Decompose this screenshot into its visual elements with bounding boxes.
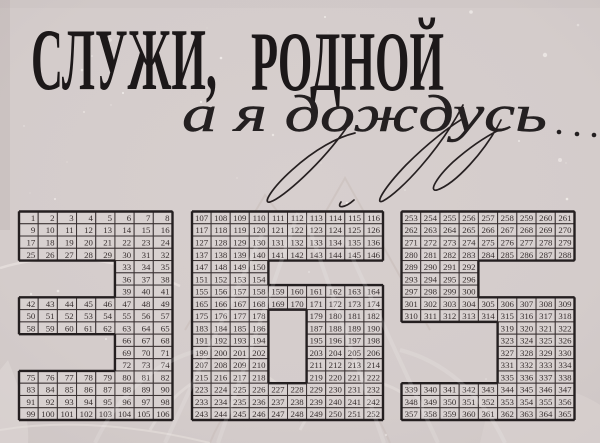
- svg-text:257: 257: [481, 213, 495, 223]
- svg-text:150: 150: [252, 262, 266, 272]
- svg-text:303: 303: [443, 299, 457, 309]
- svg-text:360: 360: [462, 409, 476, 419]
- svg-text:241: 241: [348, 397, 361, 407]
- svg-text:110: 110: [253, 213, 266, 223]
- svg-text:135: 135: [348, 238, 362, 248]
- svg-text:335: 335: [501, 372, 515, 382]
- svg-text:28: 28: [84, 250, 93, 260]
- svg-text:65: 65: [161, 323, 170, 333]
- svg-text:319: 319: [501, 323, 515, 333]
- svg-text:341: 341: [443, 385, 456, 395]
- svg-text:314: 314: [481, 311, 495, 321]
- svg-text:16: 16: [161, 225, 170, 235]
- svg-text:126: 126: [367, 225, 381, 235]
- svg-text:323: 323: [501, 336, 515, 346]
- svg-text:363: 363: [520, 409, 534, 419]
- svg-text:320: 320: [520, 323, 534, 333]
- svg-text:128: 128: [214, 238, 228, 248]
- svg-text:44: 44: [65, 299, 74, 309]
- svg-text:95: 95: [103, 397, 112, 407]
- svg-text:3: 3: [69, 213, 74, 223]
- svg-text:254: 254: [424, 213, 438, 223]
- svg-text:210: 210: [252, 360, 266, 370]
- svg-text:144: 144: [329, 250, 343, 260]
- svg-text:139: 139: [233, 250, 247, 260]
- svg-text:160: 160: [290, 287, 304, 297]
- svg-text:330: 330: [558, 348, 572, 358]
- svg-text:146: 146: [367, 250, 381, 260]
- svg-text:222: 222: [367, 372, 380, 382]
- svg-text:57: 57: [161, 311, 170, 321]
- svg-text:165: 165: [195, 299, 209, 309]
- svg-text:329: 329: [539, 348, 553, 358]
- svg-text:237: 237: [271, 397, 285, 407]
- svg-text:223: 223: [195, 385, 209, 395]
- svg-text:287: 287: [539, 250, 553, 260]
- svg-text:185: 185: [233, 323, 247, 333]
- svg-text:7: 7: [146, 213, 151, 223]
- svg-text:69: 69: [122, 348, 131, 358]
- svg-text:275: 275: [481, 238, 495, 248]
- svg-text:181: 181: [348, 311, 361, 321]
- svg-text:247: 247: [271, 409, 285, 419]
- svg-text:60: 60: [65, 323, 74, 333]
- svg-text:216: 216: [214, 372, 228, 382]
- svg-text:328: 328: [520, 348, 534, 358]
- svg-text:29: 29: [103, 250, 112, 260]
- svg-text:167: 167: [233, 299, 247, 309]
- svg-text:23: 23: [142, 238, 151, 248]
- svg-text:258: 258: [501, 213, 515, 223]
- svg-text:5: 5: [108, 213, 113, 223]
- svg-text:212: 212: [329, 360, 342, 370]
- svg-text:250: 250: [329, 409, 343, 419]
- svg-text:280: 280: [405, 250, 419, 260]
- svg-text:151: 151: [195, 274, 208, 284]
- svg-text:345: 345: [520, 385, 534, 395]
- svg-text:152: 152: [214, 274, 227, 284]
- svg-text:243: 243: [195, 409, 209, 419]
- svg-text:40: 40: [142, 287, 151, 297]
- svg-text:279: 279: [558, 238, 572, 248]
- svg-text:193: 193: [233, 336, 247, 346]
- svg-text:53: 53: [84, 311, 93, 321]
- svg-text:202: 202: [252, 348, 265, 358]
- svg-text:188: 188: [329, 323, 343, 333]
- svg-text:148: 148: [214, 262, 228, 272]
- svg-text:98: 98: [161, 397, 170, 407]
- svg-text:249: 249: [310, 409, 324, 419]
- svg-text:92: 92: [46, 397, 55, 407]
- svg-text:163: 163: [348, 287, 362, 297]
- svg-text:248: 248: [290, 409, 304, 419]
- svg-text:256: 256: [462, 213, 476, 223]
- svg-text:267: 267: [501, 225, 515, 235]
- svg-text:245: 245: [233, 409, 247, 419]
- svg-text:113: 113: [310, 213, 323, 223]
- svg-text:311: 311: [424, 311, 437, 321]
- svg-text:288: 288: [558, 250, 572, 260]
- svg-text:106: 106: [156, 409, 170, 419]
- svg-text:240: 240: [329, 397, 343, 407]
- svg-text:31: 31: [142, 250, 151, 260]
- svg-text:230: 230: [329, 385, 343, 395]
- svg-text:17: 17: [27, 238, 36, 248]
- svg-text:39: 39: [122, 287, 131, 297]
- svg-text:142: 142: [290, 250, 303, 260]
- svg-text:22: 22: [122, 238, 131, 248]
- svg-text:136: 136: [367, 238, 381, 248]
- svg-text:198: 198: [367, 336, 381, 346]
- svg-text:284: 284: [481, 250, 495, 260]
- svg-text:265: 265: [462, 225, 476, 235]
- svg-text:353: 353: [501, 397, 515, 407]
- svg-text:325: 325: [539, 336, 553, 346]
- svg-text:307: 307: [520, 299, 534, 309]
- svg-text:266: 266: [481, 225, 495, 235]
- svg-text:203: 203: [310, 348, 324, 358]
- svg-text:229: 229: [310, 385, 324, 395]
- svg-text:10: 10: [46, 225, 55, 235]
- svg-text:84: 84: [46, 385, 55, 395]
- svg-text:340: 340: [424, 385, 438, 395]
- svg-text:32: 32: [161, 250, 170, 260]
- svg-text:71: 71: [161, 348, 170, 358]
- svg-text:56: 56: [142, 311, 151, 321]
- svg-text:80: 80: [122, 372, 131, 382]
- svg-text:30: 30: [122, 250, 131, 260]
- svg-text:357: 357: [405, 409, 419, 419]
- svg-text:318: 318: [558, 311, 572, 321]
- svg-text:27: 27: [65, 250, 74, 260]
- svg-text:54: 54: [103, 311, 112, 321]
- svg-text:286: 286: [520, 250, 534, 260]
- svg-text:331: 331: [501, 360, 514, 370]
- svg-text:285: 285: [501, 250, 515, 260]
- svg-text:121: 121: [271, 225, 284, 235]
- svg-text:15: 15: [142, 225, 151, 235]
- svg-text:238: 238: [290, 397, 304, 407]
- svg-text:359: 359: [443, 409, 457, 419]
- svg-text:34: 34: [142, 262, 151, 272]
- svg-text:324: 324: [520, 336, 534, 346]
- svg-text:99: 99: [27, 409, 36, 419]
- svg-text:8: 8: [165, 213, 170, 223]
- svg-text:89: 89: [142, 385, 151, 395]
- svg-text:316: 316: [520, 311, 534, 321]
- svg-text:90: 90: [161, 385, 170, 395]
- svg-text:292: 292: [462, 262, 475, 272]
- svg-text:236: 236: [252, 397, 266, 407]
- svg-text:91: 91: [27, 397, 36, 407]
- svg-text:191: 191: [195, 336, 208, 346]
- svg-text:51: 51: [46, 311, 55, 321]
- svg-text:277: 277: [520, 238, 534, 248]
- svg-text:170: 170: [290, 299, 304, 309]
- svg-text:24: 24: [161, 238, 170, 248]
- svg-text:42: 42: [27, 299, 36, 309]
- svg-text:4: 4: [88, 213, 93, 223]
- svg-text:18: 18: [46, 238, 55, 248]
- svg-text:310: 310: [405, 311, 419, 321]
- svg-text:315: 315: [501, 311, 515, 321]
- svg-text:37: 37: [142, 274, 151, 284]
- svg-text:116: 116: [367, 213, 380, 223]
- svg-text:274: 274: [462, 238, 476, 248]
- svg-text:272: 272: [424, 238, 437, 248]
- svg-text:220: 220: [329, 372, 343, 382]
- svg-text:134: 134: [329, 238, 343, 248]
- svg-text:233: 233: [195, 397, 209, 407]
- svg-text:299: 299: [443, 287, 457, 297]
- svg-text:362: 362: [501, 409, 514, 419]
- svg-text:100: 100: [41, 409, 55, 419]
- svg-text:111: 111: [272, 213, 285, 223]
- svg-text:276: 276: [501, 238, 515, 248]
- svg-text:82: 82: [161, 372, 170, 382]
- svg-text:354: 354: [520, 397, 534, 407]
- svg-text:154: 154: [252, 274, 266, 284]
- svg-text:309: 309: [558, 299, 572, 309]
- svg-text:343: 343: [481, 385, 495, 395]
- svg-text:263: 263: [424, 225, 438, 235]
- svg-text:78: 78: [84, 372, 93, 382]
- svg-text:195: 195: [310, 336, 324, 346]
- svg-text:334: 334: [558, 360, 572, 370]
- svg-text:115: 115: [348, 213, 361, 223]
- svg-text:190: 190: [367, 323, 381, 333]
- svg-text:260: 260: [539, 213, 553, 223]
- svg-text:62: 62: [103, 323, 112, 333]
- svg-text:349: 349: [424, 397, 438, 407]
- svg-text:119: 119: [234, 225, 247, 235]
- svg-text:20: 20: [84, 238, 93, 248]
- svg-text:187: 187: [310, 323, 324, 333]
- svg-text:183: 183: [195, 323, 209, 333]
- svg-text:179: 179: [310, 311, 324, 321]
- svg-text:344: 344: [501, 385, 515, 395]
- svg-text:9: 9: [31, 225, 36, 235]
- svg-text:219: 219: [310, 372, 324, 382]
- svg-text:2: 2: [50, 213, 54, 223]
- svg-text:67: 67: [142, 336, 151, 346]
- svg-text:246: 246: [252, 409, 266, 419]
- svg-text:227: 227: [271, 385, 285, 395]
- svg-text:19: 19: [65, 238, 74, 248]
- svg-text:333: 333: [539, 360, 553, 370]
- svg-text:281: 281: [424, 250, 437, 260]
- svg-text:46: 46: [103, 299, 112, 309]
- svg-text:21: 21: [103, 238, 112, 248]
- svg-text:75: 75: [27, 372, 36, 382]
- svg-text:105: 105: [137, 409, 151, 419]
- svg-text:132: 132: [290, 238, 303, 248]
- svg-text:55: 55: [122, 311, 131, 321]
- svg-text:129: 129: [233, 238, 247, 248]
- svg-text:196: 196: [329, 336, 343, 346]
- svg-text:137: 137: [195, 250, 209, 260]
- svg-text:101: 101: [60, 409, 73, 419]
- svg-text:58: 58: [27, 323, 36, 333]
- svg-text:166: 166: [214, 299, 228, 309]
- svg-text:87: 87: [103, 385, 112, 395]
- svg-text:102: 102: [80, 409, 93, 419]
- svg-text:109: 109: [233, 213, 247, 223]
- svg-text:12: 12: [84, 225, 93, 235]
- svg-text:14: 14: [122, 225, 131, 235]
- svg-text:228: 228: [290, 385, 304, 395]
- svg-text:47: 47: [122, 299, 131, 309]
- svg-text:204: 204: [329, 348, 343, 358]
- svg-text:302: 302: [424, 299, 437, 309]
- svg-text:317: 317: [539, 311, 553, 321]
- svg-text:261: 261: [558, 213, 571, 223]
- svg-text:294: 294: [424, 274, 438, 284]
- svg-text:218: 218: [252, 372, 266, 382]
- svg-text:36: 36: [122, 274, 131, 284]
- svg-text:118: 118: [214, 225, 227, 235]
- svg-text:326: 326: [558, 336, 572, 346]
- svg-text:298: 298: [424, 287, 438, 297]
- svg-text:337: 337: [539, 372, 553, 382]
- svg-text:66: 66: [122, 336, 131, 346]
- svg-text:86: 86: [84, 385, 93, 395]
- svg-text:312: 312: [443, 311, 456, 321]
- svg-text:173: 173: [348, 299, 362, 309]
- svg-text:296: 296: [462, 274, 476, 284]
- svg-text:346: 346: [539, 385, 553, 395]
- svg-text:306: 306: [501, 299, 515, 309]
- svg-text:41: 41: [161, 287, 170, 297]
- svg-text:94: 94: [84, 397, 93, 407]
- svg-text:226: 226: [252, 385, 266, 395]
- svg-text:117: 117: [195, 225, 208, 235]
- svg-text:308: 308: [539, 299, 553, 309]
- svg-text:107: 107: [195, 213, 209, 223]
- svg-text:171: 171: [310, 299, 323, 309]
- svg-text:131: 131: [271, 238, 284, 248]
- svg-text:295: 295: [443, 274, 457, 284]
- svg-text:52: 52: [65, 311, 74, 321]
- svg-text:255: 255: [443, 213, 457, 223]
- svg-text:38: 38: [161, 274, 170, 284]
- svg-text:158: 158: [252, 287, 266, 297]
- svg-text:177: 177: [233, 311, 247, 321]
- svg-text:26: 26: [46, 250, 55, 260]
- svg-text:25: 25: [27, 250, 36, 260]
- svg-text:97: 97: [142, 397, 151, 407]
- svg-text:6: 6: [127, 213, 132, 223]
- svg-text:283: 283: [462, 250, 476, 260]
- svg-text:313: 313: [462, 311, 476, 321]
- svg-text:43: 43: [46, 299, 55, 309]
- svg-text:304: 304: [462, 299, 476, 309]
- svg-text:347: 347: [558, 385, 572, 395]
- svg-text:64: 64: [142, 323, 151, 333]
- svg-text:208: 208: [214, 360, 228, 370]
- svg-text:321: 321: [539, 323, 552, 333]
- svg-text:336: 336: [520, 372, 534, 382]
- svg-text:297: 297: [405, 287, 419, 297]
- svg-text:73: 73: [142, 360, 151, 370]
- svg-text:327: 327: [501, 348, 515, 358]
- svg-text:251: 251: [348, 409, 361, 419]
- svg-text:108: 108: [214, 213, 228, 223]
- svg-text:364: 364: [539, 409, 553, 419]
- svg-text:59: 59: [46, 323, 55, 333]
- svg-text:224: 224: [214, 385, 228, 395]
- svg-text:291: 291: [443, 262, 456, 272]
- svg-text:200: 200: [214, 348, 228, 358]
- svg-text:206: 206: [367, 348, 381, 358]
- svg-text:1: 1: [31, 213, 35, 223]
- svg-text:301: 301: [405, 299, 418, 309]
- svg-text:270: 270: [558, 225, 572, 235]
- svg-text:338: 338: [558, 372, 572, 382]
- svg-text:33: 33: [122, 262, 131, 272]
- svg-text:268: 268: [520, 225, 534, 235]
- svg-text:332: 332: [520, 360, 533, 370]
- svg-text:271: 271: [405, 238, 418, 248]
- svg-text:290: 290: [424, 262, 438, 272]
- svg-text:232: 232: [367, 385, 380, 395]
- svg-text:125: 125: [348, 225, 362, 235]
- svg-text:127: 127: [195, 238, 209, 248]
- svg-text:13: 13: [103, 225, 112, 235]
- svg-text:259: 259: [520, 213, 534, 223]
- svg-text:120: 120: [252, 225, 266, 235]
- svg-text:351: 351: [462, 397, 475, 407]
- svg-text:269: 269: [539, 225, 553, 235]
- svg-text:124: 124: [329, 225, 343, 235]
- svg-text:50: 50: [27, 311, 36, 321]
- svg-text:61: 61: [84, 323, 93, 333]
- svg-text:156: 156: [214, 287, 228, 297]
- svg-text:234: 234: [214, 397, 228, 407]
- svg-text:45: 45: [84, 299, 93, 309]
- svg-text:161: 161: [310, 287, 323, 297]
- svg-text:68: 68: [161, 336, 170, 346]
- svg-text:356: 356: [558, 397, 572, 407]
- svg-text:253: 253: [405, 213, 419, 223]
- svg-text:114: 114: [329, 213, 342, 223]
- svg-text:278: 278: [539, 238, 553, 248]
- svg-text:214: 214: [367, 360, 381, 370]
- svg-text:70: 70: [142, 348, 151, 358]
- svg-text:138: 138: [214, 250, 228, 260]
- svg-text:104: 104: [118, 409, 132, 419]
- svg-text:49: 49: [161, 299, 170, 309]
- svg-text:48: 48: [142, 299, 151, 309]
- svg-text:76: 76: [46, 372, 55, 382]
- svg-text:282: 282: [443, 250, 456, 260]
- svg-text:169: 169: [271, 299, 285, 309]
- svg-text:262: 262: [405, 225, 418, 235]
- svg-text:239: 239: [310, 397, 324, 407]
- svg-text:147: 147: [195, 262, 209, 272]
- svg-text:293: 293: [405, 274, 419, 284]
- svg-text:77: 77: [65, 372, 74, 382]
- svg-text:273: 273: [443, 238, 457, 248]
- svg-text:300: 300: [462, 287, 476, 297]
- svg-text:350: 350: [443, 397, 457, 407]
- svg-text:155: 155: [195, 287, 209, 297]
- svg-text:264: 264: [443, 225, 457, 235]
- svg-text:231: 231: [348, 385, 361, 395]
- svg-text:201: 201: [233, 348, 246, 358]
- svg-text:11: 11: [65, 225, 73, 235]
- svg-text:365: 365: [558, 409, 572, 419]
